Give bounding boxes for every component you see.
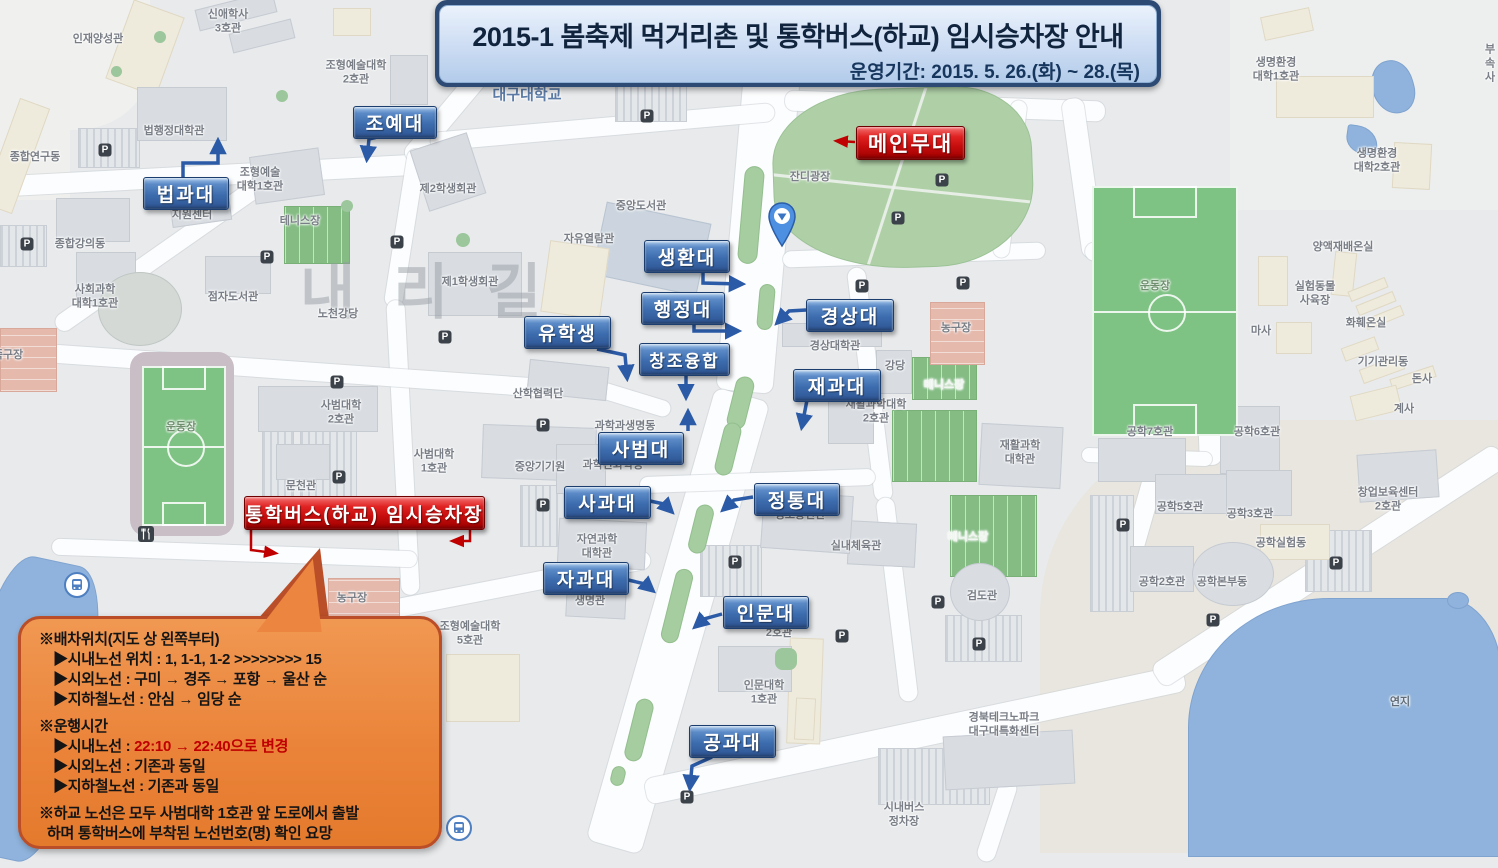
college-label: 조예대 <box>353 106 437 139</box>
bus-info-line: ▶시외노선 : 구미 → 경주 → 포항 → 울산 순 <box>39 670 431 690</box>
blue-arrow <box>183 142 218 177</box>
college-label: 창조융합 <box>639 343 730 376</box>
bus-info-segment: ※배차위치(지도 상 왼쪽부터) <box>39 631 219 648</box>
bus-info-segment: ▶지하철노선 : 기존과 동일 <box>53 778 219 795</box>
bus-info-line: ▶지하철노선 : 기존과 동일 <box>39 777 431 797</box>
bus-info-line: ▶지하철노선 : 안심 → 임당 순 <box>39 690 431 710</box>
bus-info-segment: ▶시외노선 : 구미 → 경주 → 포항 → 울산 순 <box>53 671 327 688</box>
bus-info-segment: ▶지하철노선 : 안심 → 임당 순 <box>53 691 241 708</box>
college-label: 자과대 <box>543 562 629 595</box>
bus-info-segment: ※운행시간 <box>39 718 108 735</box>
red-arrow <box>838 141 855 142</box>
blue-arrow <box>696 614 722 626</box>
bus-info-callout: ※배차위치(지도 상 왼쪽부터)▶시내노선 위치 : 1, 1-1, 1-2 >… <box>18 616 442 849</box>
blue-arrow <box>597 349 627 377</box>
college-label: 정통대 <box>754 483 840 516</box>
blue-arrow <box>778 310 806 322</box>
college-label: 경상대 <box>806 299 894 332</box>
bus-info-line: 하며 통학버스에 부착된 노선번호(명) 확인 요망 <box>39 824 431 844</box>
bus-info-segment: ▶시내노선 : <box>53 738 134 755</box>
bus-info-segment: ▶시외노선 : 기존과 동일 <box>53 758 206 775</box>
college-label: 행정대 <box>641 292 725 325</box>
college-label: 법과대 <box>143 177 229 210</box>
bus-info-line: ※운행시간 <box>39 717 431 737</box>
title-banner: 2015-1 봄축제 먹거리촌 및 통학버스(하교) 임시승차장 안내 운영기간… <box>439 5 1157 83</box>
changed-time-text: 22:10 → 22:40으로 변경 <box>134 738 288 755</box>
blue-arrow <box>703 273 741 284</box>
college-label: 유학생 <box>524 316 611 349</box>
bus-info-text: ※배차위치(지도 상 왼쪽부터)▶시내노선 위치 : 1, 1-1, 1-2 >… <box>39 630 431 844</box>
highlight-label: 통학버스(하교) 임시승차장 <box>244 496 485 530</box>
college-label: 재과대 <box>793 369 881 402</box>
bus-info-segment: ▶시내노선 위치 : 1, 1-1, 1-2 >>>>>>>> 15 <box>53 651 322 668</box>
red-arrow <box>251 529 274 553</box>
college-label: 공과대 <box>689 725 776 758</box>
banner-title: 2015-1 봄축제 먹거리촌 및 통학버스(하교) 임시승차장 안내 <box>440 15 1156 54</box>
highlight-label: 메인무대 <box>856 126 965 160</box>
red-arrow <box>454 529 470 541</box>
bus-info-line: ※배차위치(지도 상 왼쪽부터) <box>39 630 431 650</box>
blue-arrow <box>802 400 807 426</box>
bus-info-line: ▶시내노선 위치 : 1, 1-1, 1-2 >>>>>>>> 15 <box>39 650 431 670</box>
map-pin-icon <box>768 202 796 253</box>
blue-arrow <box>650 501 671 511</box>
bus-info-line: ▶시내노선 : 22:10 → 22:40으로 변경 <box>39 737 431 757</box>
bus-info-segment: ※하교 노선은 모두 사범대학 1호관 앞 도로에서 출발 <box>39 805 359 822</box>
college-label: 사과대 <box>564 486 651 519</box>
title-banner-frame: 2015-1 봄축제 먹거리촌 및 통학버스(하교) 임시승차장 안내 운영기간… <box>435 0 1161 87</box>
college-label: 사범대 <box>598 432 684 465</box>
blue-arrow <box>690 757 712 787</box>
college-label: 생환대 <box>644 240 730 273</box>
bus-info-line: ※하교 노선은 모두 사범대학 1호관 앞 도로에서 출발 <box>39 804 431 824</box>
bus-info-segment: 하며 통학버스에 부착된 노선번호(명) 확인 요망 <box>47 825 332 842</box>
bus-info-line: ▶시외노선 : 기존과 동일 <box>39 757 431 777</box>
blue-arrow <box>694 324 737 331</box>
banner-subtitle: 운영기간: 2015. 5. 26.(화) ~ 28.(목) <box>440 57 1156 84</box>
blue-arrow <box>724 497 753 509</box>
festival-map-poster: { "banner": { "title": "2015-1 봄축제 먹거리촌 … <box>0 0 1498 853</box>
college-label: 인문대 <box>723 596 809 629</box>
